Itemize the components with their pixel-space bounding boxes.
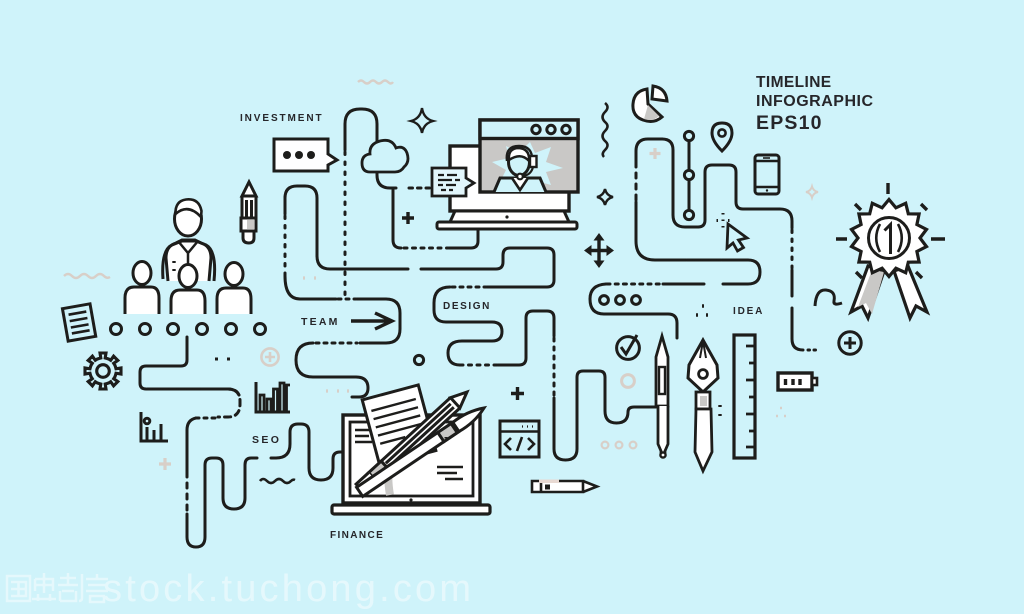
- svg-text:INVESTMENT: INVESTMENT: [240, 113, 323, 124]
- svg-text:FINANCE: FINANCE: [330, 530, 384, 541]
- svg-text:EPS10: EPS10: [756, 112, 823, 134]
- svg-text:TEAM: TEAM: [301, 316, 340, 328]
- svg-text:SEO: SEO: [252, 434, 281, 446]
- svg-text:IDEA: IDEA: [733, 306, 764, 317]
- svg-text:stock.tuchong.com: stock.tuchong.com: [103, 568, 474, 610]
- svg-text:INFOGRAPHIC: INFOGRAPHIC: [756, 93, 874, 110]
- svg-text:DESIGN: DESIGN: [443, 301, 491, 312]
- svg-text:TIMELINE: TIMELINE: [756, 74, 832, 91]
